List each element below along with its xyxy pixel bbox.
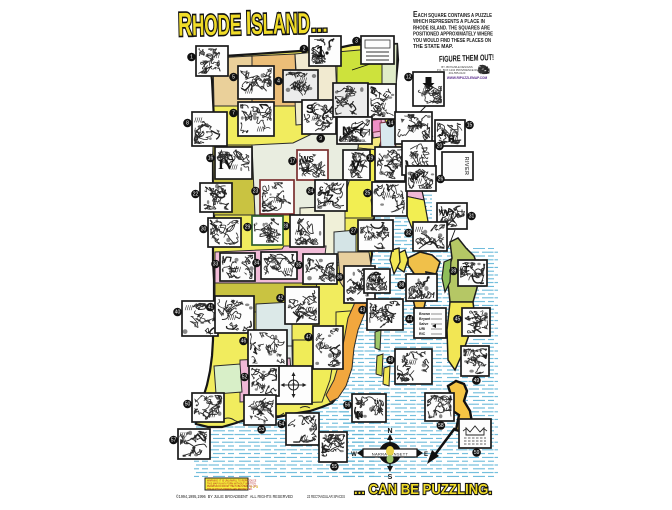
svg-text:22 RECTANGULAR SPACES: 22 RECTANGULAR SPACES bbox=[307, 494, 345, 499]
svg-text:19: 19 bbox=[368, 156, 374, 162]
svg-text:7: 7 bbox=[232, 111, 235, 117]
svg-text:RIC: RIC bbox=[419, 332, 426, 336]
svg-text:16: 16 bbox=[208, 156, 214, 162]
svg-text:49: 49 bbox=[474, 378, 480, 384]
svg-text:14: 14 bbox=[388, 121, 394, 127]
svg-text:54: 54 bbox=[279, 422, 285, 428]
svg-text:...: ... bbox=[311, 15, 328, 37]
svg-text:55: 55 bbox=[332, 464, 338, 470]
svg-text:W: W bbox=[351, 452, 357, 458]
svg-text:27: 27 bbox=[351, 229, 357, 235]
svg-text:THIS MAP IN ANY FORM WITHOUT W: THIS MAP IN ANY FORM WITHOUT WRITTEN bbox=[207, 482, 256, 485]
svg-text:45: 45 bbox=[455, 317, 461, 323]
svg-text:S: S bbox=[388, 474, 393, 481]
svg-text:23: 23 bbox=[253, 189, 259, 195]
svg-text:401-555-0123: 401-555-0123 bbox=[449, 71, 466, 75]
svg-text:Bryant: Bryant bbox=[419, 317, 431, 321]
svg-text:N: N bbox=[387, 316, 393, 325]
svg-text:12: 12 bbox=[406, 75, 412, 81]
svg-text:T: T bbox=[463, 265, 469, 276]
svg-text:STATE CAPITOL: STATE CAPITOL bbox=[340, 139, 366, 143]
svg-text:40: 40 bbox=[175, 310, 181, 316]
svg-text:5: 5 bbox=[232, 75, 235, 81]
svg-text:WWW.RIPUZZLEMAP.COM: WWW.RIPUZZLEMAP.COM bbox=[447, 76, 488, 80]
svg-text:41: 41 bbox=[208, 305, 214, 311]
svg-text:39: 39 bbox=[451, 269, 457, 275]
svg-text:35: 35 bbox=[296, 263, 302, 269]
svg-text:Salve: Salve bbox=[419, 322, 428, 326]
svg-text:THE STATE MAP.: THE STATE MAP. bbox=[413, 44, 454, 50]
svg-text:4: 4 bbox=[277, 79, 280, 85]
svg-text:30: 30 bbox=[201, 227, 207, 233]
svg-text:FIGURE THEM OUT!: FIGURE THEM OUT! bbox=[439, 52, 494, 64]
svg-text:?: ? bbox=[292, 383, 295, 389]
svg-text:RHODE ISLAND. THE SQUARES ARE: RHODE ISLAND. THE SQUARES ARE bbox=[413, 25, 491, 31]
svg-text:THE PUZZLES HEREIN ARE PROTECT: THE PUZZLES HEREIN ARE PROTECTED. bbox=[207, 488, 253, 491]
svg-text:59: 59 bbox=[474, 450, 480, 456]
svg-text:31: 31 bbox=[469, 214, 475, 220]
svg-text:E: E bbox=[424, 452, 428, 458]
svg-text:22: 22 bbox=[193, 192, 199, 198]
svg-text:c: c bbox=[319, 184, 324, 193]
svg-text:RIVER: RIVER bbox=[463, 157, 469, 176]
svg-text:URI: URI bbox=[419, 327, 425, 331]
svg-text:38: 38 bbox=[399, 283, 405, 289]
svg-text:J: J bbox=[439, 128, 444, 138]
svg-text:52: 52 bbox=[242, 375, 248, 381]
svg-text:29: 29 bbox=[245, 225, 251, 231]
svg-text:Brown: Brown bbox=[419, 312, 430, 316]
svg-text:©1994,1995,1996 BY JULIE BROA: ©1994,1995,1996 BY JULIE BROADBENT ALL R… bbox=[176, 494, 293, 499]
svg-text:T: T bbox=[307, 258, 313, 268]
svg-text:46: 46 bbox=[241, 339, 247, 345]
svg-text:WARNING: IT IS UNLAWFUL TO REP: WARNING: IT IS UNLAWFUL TO REPRODUCE bbox=[207, 480, 257, 483]
svg-text:17: 17 bbox=[290, 159, 296, 165]
svg-text:IV: IV bbox=[218, 157, 235, 173]
svg-text:S: S bbox=[306, 102, 314, 116]
svg-text:2: 2 bbox=[303, 47, 306, 53]
svg-text:48: 48 bbox=[388, 358, 394, 364]
svg-text:N: N bbox=[342, 124, 351, 138]
svg-text:50: 50 bbox=[185, 402, 191, 408]
svg-text:W: W bbox=[410, 172, 419, 182]
svg-text:YOU WOULD FIND THESE PLACES ON: YOU WOULD FIND THESE PLACES ON bbox=[413, 38, 491, 44]
svg-text:57: 57 bbox=[171, 438, 177, 444]
svg-text:1: 1 bbox=[190, 55, 193, 61]
svg-text:N: N bbox=[387, 428, 392, 435]
svg-text:1: 1 bbox=[316, 44, 325, 61]
svg-text:WS: WS bbox=[301, 155, 315, 164]
svg-text:42: 42 bbox=[278, 296, 284, 302]
svg-text:26: 26 bbox=[438, 177, 444, 183]
svg-text:... CAN BE PUZZLING.: ... CAN BE PUZZLING. bbox=[354, 481, 492, 498]
svg-text:Z: Z bbox=[327, 193, 334, 205]
svg-text:33: 33 bbox=[213, 262, 219, 268]
svg-text:H: H bbox=[448, 134, 455, 144]
svg-text:1 2 3: 1 2 3 bbox=[250, 485, 258, 489]
svg-text:25: 25 bbox=[365, 191, 371, 197]
svg-text:58: 58 bbox=[438, 423, 444, 429]
svg-text:24: 24 bbox=[308, 189, 314, 195]
svg-text:32: 32 bbox=[406, 231, 412, 237]
svg-text:36: 36 bbox=[337, 275, 343, 281]
svg-text:J: J bbox=[372, 303, 377, 313]
svg-text:9: 9 bbox=[319, 136, 322, 142]
svg-text:POSITIONED APPROXIMATELY WHERE: POSITIONED APPROXIMATELY WHERE bbox=[413, 32, 494, 38]
svg-text:44: 44 bbox=[407, 317, 413, 323]
svg-text:ti: ti bbox=[374, 399, 378, 406]
svg-text:t: t bbox=[359, 125, 363, 139]
svg-text:3: 3 bbox=[355, 39, 358, 45]
svg-text:N: N bbox=[356, 410, 363, 421]
svg-text:34: 34 bbox=[254, 261, 260, 267]
svg-text:43: 43 bbox=[360, 308, 366, 314]
svg-text:WHICH REPRESENTS A PLACE IN: WHICH REPRESENTS A PLACE IN bbox=[413, 19, 485, 25]
svg-text:47: 47 bbox=[306, 335, 312, 341]
svg-text:15: 15 bbox=[467, 123, 473, 129]
svg-text:53: 53 bbox=[259, 427, 265, 433]
svg-text:W: W bbox=[441, 208, 450, 218]
svg-text:bed: bed bbox=[369, 277, 381, 284]
svg-text:56: 56 bbox=[345, 403, 351, 409]
svg-text:8: 8 bbox=[186, 121, 189, 127]
svg-text:V: V bbox=[351, 157, 361, 173]
svg-text:20: 20 bbox=[437, 144, 443, 150]
